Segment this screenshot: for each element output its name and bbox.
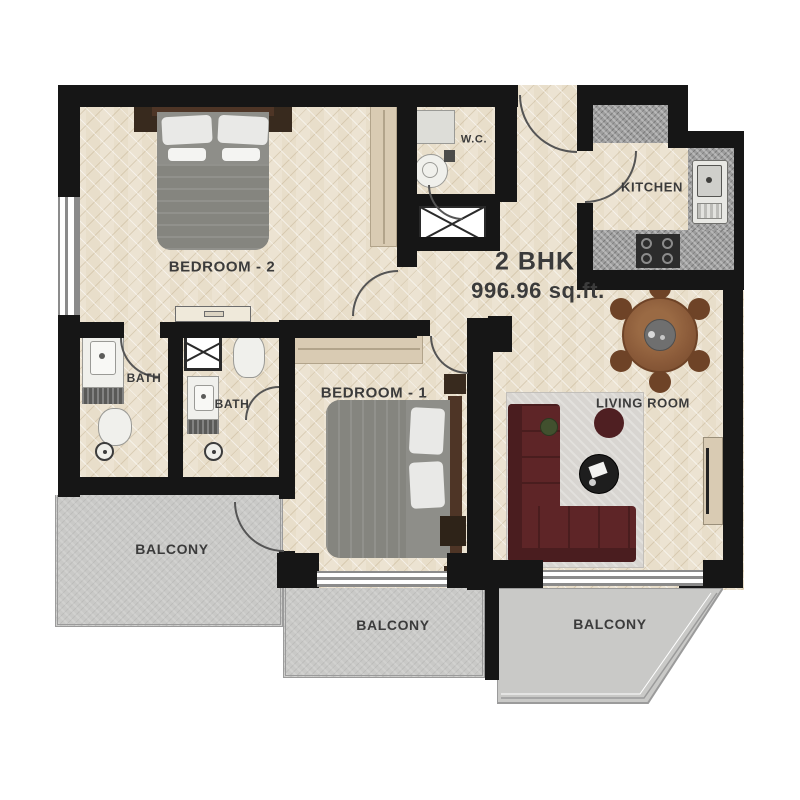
wall — [485, 570, 499, 680]
kitchen-sink — [692, 160, 728, 224]
wall — [295, 320, 430, 336]
floor-plan: BEDROOM - 2 W.C. KITCHEN 2 BHK 996.96 sq… — [0, 0, 800, 800]
bath-counter — [82, 388, 124, 404]
pillow-icon — [409, 407, 445, 455]
wall — [668, 131, 744, 148]
bath-counter — [187, 420, 219, 434]
window — [317, 571, 447, 587]
coffee-table — [579, 454, 619, 494]
wall — [486, 194, 500, 251]
room-label-bedroom1: BEDROOM - 1 — [321, 386, 428, 401]
room-label-kitchen: KITCHEN — [621, 181, 683, 194]
pouf — [594, 408, 624, 438]
floor-drain-icon — [95, 442, 114, 461]
wardrobe-bedroom2 — [370, 105, 397, 247]
wall — [277, 553, 319, 588]
duvet — [326, 400, 406, 558]
pillow-icon — [217, 115, 268, 146]
unit-area-label: 996.96 sq.ft. — [471, 280, 605, 302]
toilet-icon — [233, 334, 265, 378]
wall — [723, 288, 743, 572]
tv-unit — [703, 437, 723, 525]
bath-sink — [82, 330, 124, 388]
window — [58, 197, 80, 315]
wall — [58, 85, 80, 197]
pillow-icon — [161, 115, 212, 146]
room-label-bath1: BATH — [127, 372, 162, 384]
wall — [58, 85, 518, 107]
pillow-icon — [222, 148, 260, 161]
duvet — [157, 164, 269, 250]
wall — [582, 270, 744, 290]
room-label-balcony-right: BALCONY — [573, 617, 646, 631]
wardrobe-bedroom1 — [293, 334, 423, 364]
room-label-bath2: BATH — [215, 398, 250, 410]
dresser-bedroom2 — [175, 306, 251, 322]
wall — [577, 203, 593, 290]
balcony-right-floor — [497, 588, 723, 706]
balcony-middle-floor — [283, 588, 485, 678]
plant-icon — [540, 418, 558, 436]
pillow-icon — [168, 148, 206, 161]
bench — [440, 516, 466, 546]
wall — [703, 560, 743, 588]
exterior-notch — [688, 85, 744, 133]
room-label-balcony-middle: BALCONY — [356, 618, 429, 632]
toilet-icon — [98, 408, 132, 446]
wall — [495, 85, 517, 202]
toilet-wc — [414, 154, 448, 188]
floor-drain-icon — [204, 442, 223, 461]
wall — [168, 322, 183, 479]
wall — [58, 315, 80, 497]
bed-bedroom1 — [326, 374, 466, 586]
kitchen-counter-top — [593, 103, 668, 143]
wall — [734, 147, 744, 289]
bed-bedroom2 — [134, 104, 292, 250]
stove — [636, 234, 680, 268]
window — [543, 570, 703, 586]
wall — [493, 560, 543, 588]
cistern-wc — [444, 150, 455, 162]
pillow-icon — [409, 461, 445, 509]
room-label-bedroom2: BEDROOM - 2 — [169, 260, 276, 275]
room-label-wc: W.C. — [461, 135, 487, 146]
dining-set — [608, 275, 712, 395]
wall — [58, 322, 124, 338]
room-label-living: LIVING ROOM — [596, 397, 690, 410]
dining-chair-icon — [649, 371, 671, 393]
wall — [279, 320, 295, 499]
wall — [58, 477, 295, 495]
nightstand-icon — [444, 374, 466, 394]
wall — [467, 334, 493, 590]
shower-tray-wc — [413, 110, 455, 144]
unit-type-label: 2 BHK — [495, 250, 575, 275]
wall — [577, 85, 593, 151]
room-label-balcony-left: BALCONY — [135, 542, 208, 556]
